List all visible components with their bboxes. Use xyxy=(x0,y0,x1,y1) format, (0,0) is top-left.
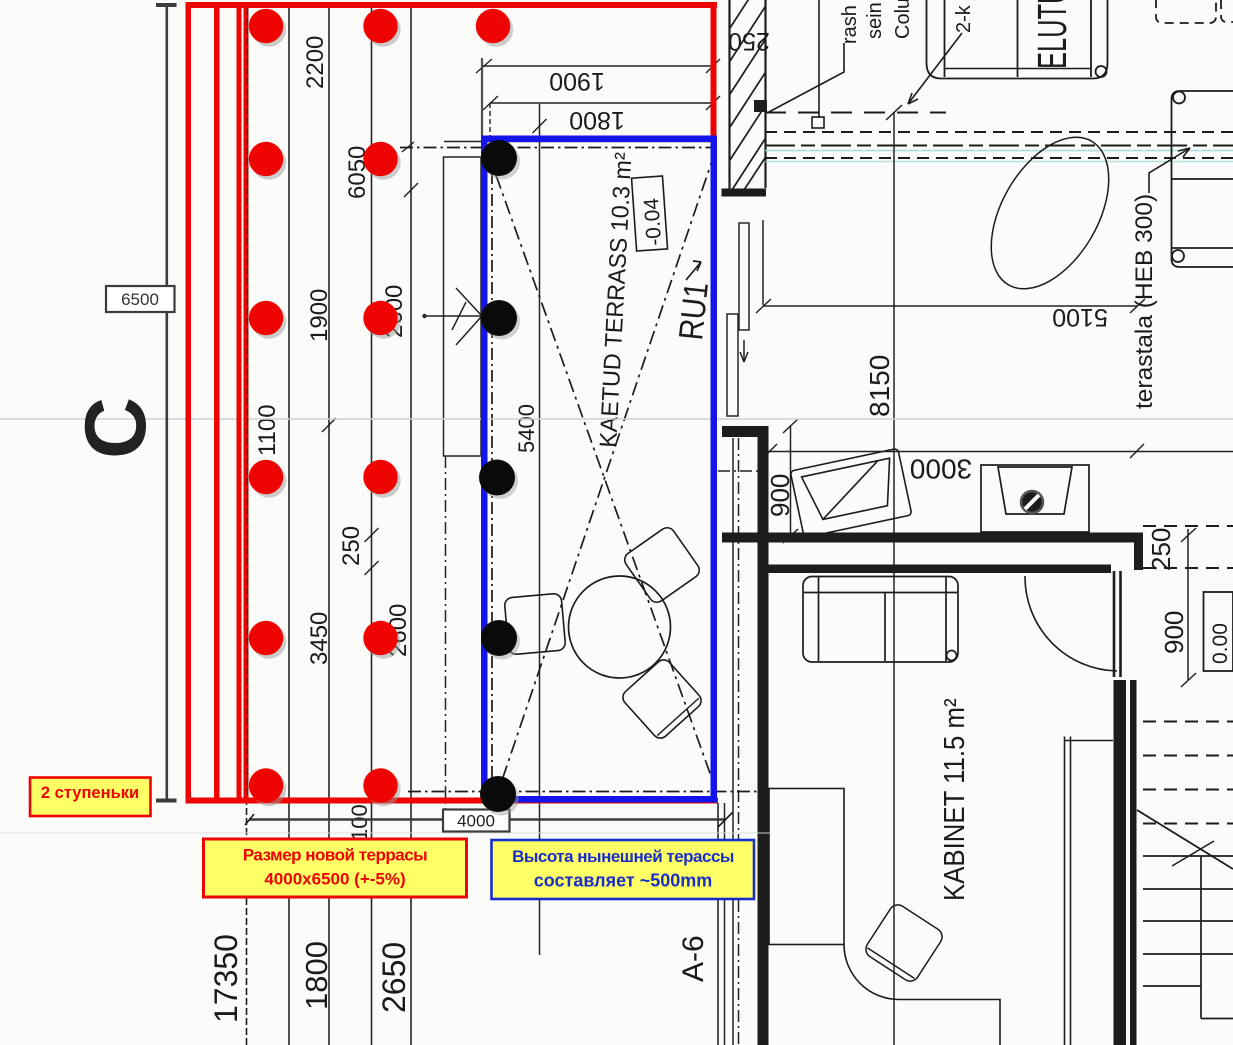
svg-text:составляет ~500mm: составляет ~500mm xyxy=(534,871,713,891)
svg-text:sein: sein xyxy=(864,2,886,39)
svg-text:250: 250 xyxy=(338,526,365,566)
svg-text:17350: 17350 xyxy=(208,934,244,1023)
svg-text:1800: 1800 xyxy=(299,941,334,1010)
svg-text:2 ступеньки: 2 ступеньки xyxy=(41,784,139,802)
svg-text:250: 250 xyxy=(728,27,770,55)
svg-text:100: 100 xyxy=(347,804,372,841)
svg-text:0.00: 0.00 xyxy=(1209,623,1232,664)
svg-text:3000: 3000 xyxy=(910,454,972,485)
svg-text:1900: 1900 xyxy=(549,67,605,95)
svg-text:250: 250 xyxy=(1146,528,1176,571)
svg-text:5100: 5100 xyxy=(1052,303,1108,331)
svg-text:A-6: A-6 xyxy=(677,935,710,982)
svg-text:Размер новой террасы: Размер новой террасы xyxy=(243,846,427,865)
svg-text:-0.04: -0.04 xyxy=(640,197,666,247)
svg-text:3450: 3450 xyxy=(306,612,333,665)
svg-text:ELUTUBA: ELUTUBA xyxy=(1030,0,1076,69)
svg-text:C: C xyxy=(68,397,164,459)
svg-text:Высота нынешней терассы: Высота нынешней терассы xyxy=(512,847,734,866)
svg-text:1800: 1800 xyxy=(569,106,625,134)
svg-text:2200: 2200 xyxy=(302,36,329,89)
svg-text:2-k: 2-k xyxy=(953,4,975,33)
svg-text:KABINET 11.5 m²: KABINET 11.5 m² xyxy=(938,698,971,901)
svg-text:4000: 4000 xyxy=(457,812,495,831)
svg-text:terastala (HEB 300): terastala (HEB 300) xyxy=(1131,194,1158,409)
svg-text:4000x6500 (+-5%): 4000x6500 (+-5%) xyxy=(264,870,405,889)
svg-text:6500: 6500 xyxy=(121,290,159,309)
svg-text:Colu: Colu xyxy=(892,0,914,39)
svg-text:1100: 1100 xyxy=(254,404,281,456)
svg-text:5400: 5400 xyxy=(514,404,539,453)
svg-text:2650: 2650 xyxy=(376,942,412,1013)
svg-text:rash: rash xyxy=(839,5,861,44)
svg-text:8150: 8150 xyxy=(864,355,895,417)
svg-text:RU1: RU1 xyxy=(671,280,716,342)
svg-text:1900: 1900 xyxy=(306,289,333,342)
svg-text:900: 900 xyxy=(765,474,795,517)
svg-text:900: 900 xyxy=(1159,611,1189,654)
